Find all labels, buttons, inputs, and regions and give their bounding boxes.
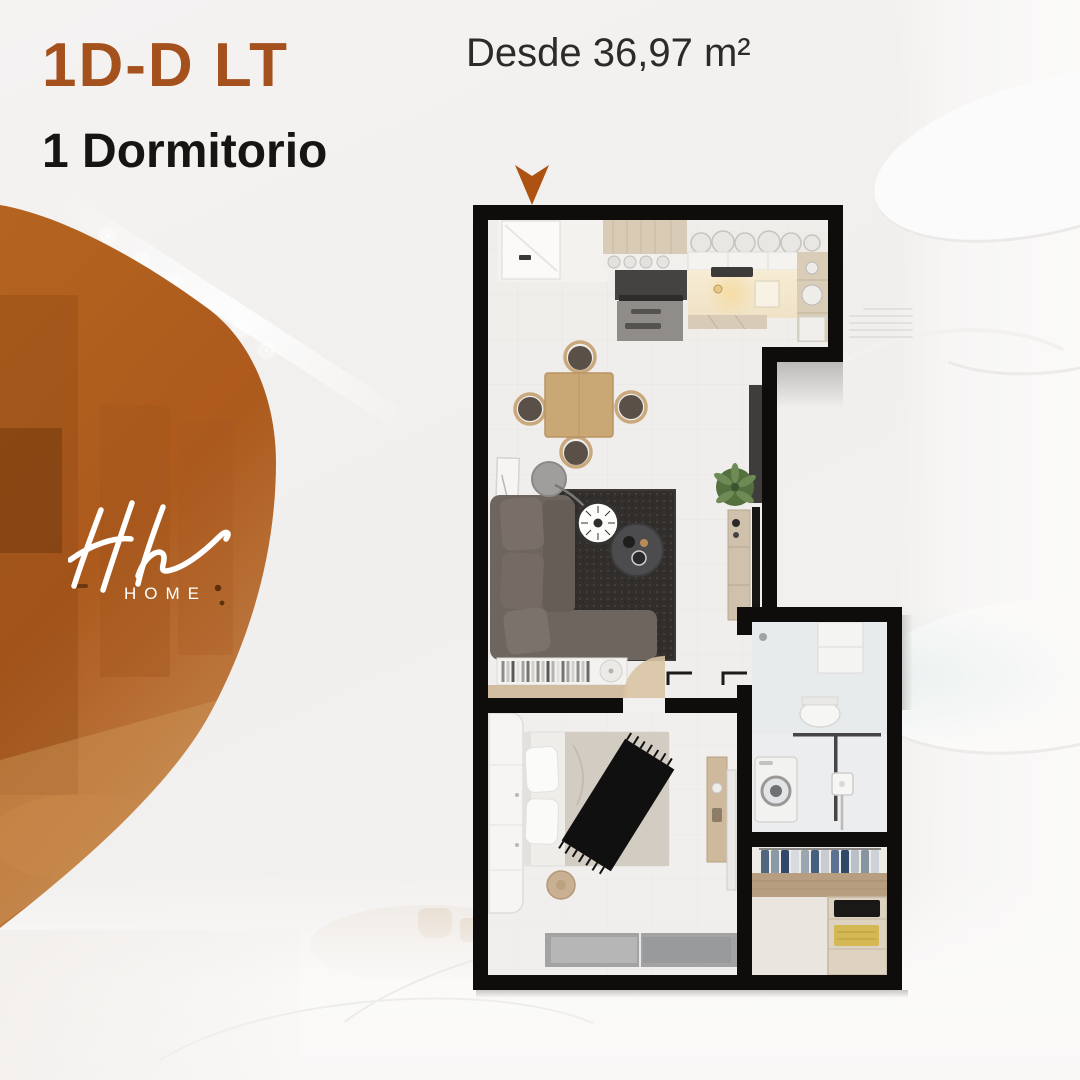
brand-logo: Hh HOME xyxy=(68,496,243,616)
closet-shelf xyxy=(752,873,887,897)
dining-chair xyxy=(515,394,545,424)
dining-chair xyxy=(561,437,591,467)
coffee-table xyxy=(611,524,663,576)
floor-mat xyxy=(545,933,737,967)
brand-script-hh-icon xyxy=(68,496,243,596)
flyer-canvas: Hh HOME 1D-D LT 1 Dormitorio Desde 36,97… xyxy=(0,0,1080,1080)
leaning-mirror xyxy=(727,770,736,890)
dining-chair xyxy=(565,342,595,372)
media-shelf xyxy=(497,658,627,685)
tv-console xyxy=(728,507,760,620)
unit-subtitle: 1 Dormitorio xyxy=(42,124,327,179)
television xyxy=(752,507,760,613)
shower-head xyxy=(759,633,767,641)
washing-machine xyxy=(755,757,797,822)
folded-clothes-yellow xyxy=(834,925,879,946)
closet-cubby xyxy=(828,897,887,975)
arrow-down-entrance-icon xyxy=(514,163,550,205)
unit-title: 1D-D LT xyxy=(42,30,289,101)
folded-clothes-dark xyxy=(834,900,880,917)
brand-word: HOME xyxy=(124,584,207,604)
dining-chair xyxy=(616,392,646,422)
floor-plan xyxy=(473,205,921,1005)
unit-area: Desde 36,97 m² xyxy=(466,31,751,76)
bedroom-wardrobe xyxy=(489,713,523,913)
threshold-strip xyxy=(488,685,627,698)
bed xyxy=(523,731,679,879)
